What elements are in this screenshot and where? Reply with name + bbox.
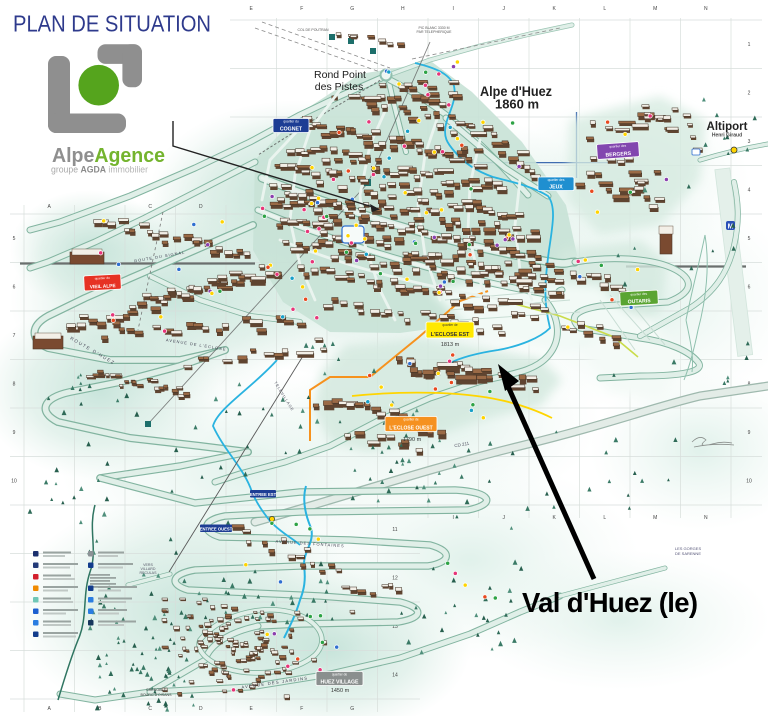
svg-text:OUTARIS: OUTARIS [628,298,652,305]
svg-text:C: C [148,204,152,210]
svg-text:1790 m: 1790 m [403,437,422,443]
svg-text:D: D [199,204,203,210]
svg-text:11: 11 [392,527,397,533]
svg-text:BOURG D'OISANS: BOURG D'OISANS [140,693,172,697]
svg-text:3: 3 [748,139,751,145]
svg-text:D: D [199,706,203,712]
svg-text:8: 8 [13,382,16,388]
svg-text:5: 5 [748,236,751,242]
svg-text:2: 2 [748,91,751,97]
svg-text:DE SARENNE: DE SARENNE [675,551,701,556]
svg-text:I: I [453,515,454,521]
svg-text:PAR TELEPHERIQUE: PAR TELEPHERIQUE [417,30,453,34]
svg-text:L: L [603,6,606,12]
svg-text:L: L [603,515,606,521]
svg-text:6: 6 [748,285,751,291]
svg-text:I: I [453,6,454,12]
svg-text:ENTREE EST: ENTREE EST [250,492,277,497]
svg-text:7: 7 [13,333,16,339]
svg-text:10: 10 [746,479,752,485]
svg-text:C: C [148,706,152,712]
svg-text:5: 5 [13,236,16,242]
svg-text:Rond Point: Rond Point [314,69,366,81]
svg-text:1860 m: 1860 m [495,97,539,112]
svg-text:GRENOBLE: GRENOBLE [146,688,167,692]
svg-text:quartier du: quartier du [283,120,298,124]
svg-text:M: M [653,515,657,521]
svg-text:Altiport: Altiport [707,121,748,133]
svg-text:L'ECLOSE EST: L'ECLOSE EST [431,332,470,338]
svg-text:M: M [653,6,657,12]
svg-text:1: 1 [748,42,751,48]
svg-text:G: G [350,706,354,712]
svg-text:1450 m: 1450 m [331,688,350,694]
svg-text:4: 4 [748,188,751,194]
svg-text:quartier de: quartier de [442,323,457,327]
svg-text:L'ECLOSE OUEST: L'ECLOSE OUEST [389,425,432,431]
svg-text:9: 9 [13,430,16,436]
svg-text:PLAN DE SITUATION: PLAN DE SITUATION [13,11,211,37]
svg-text:14: 14 [392,673,398,679]
svg-text:F: F [300,6,303,12]
svg-text:Val d'Huez (le): Val d'Huez (le) [522,587,698,618]
svg-text:N: N [704,515,708,521]
svg-text:F: F [300,706,303,712]
svg-text:ENTREE OUEST: ENTREE OUEST [200,526,233,531]
svg-text:HUEZ VILLAGE: HUEZ VILLAGE [320,679,359,685]
svg-text:10: 10 [11,479,17,485]
svg-text:COL DE POUTRAN: COL DE POUTRAN [298,28,329,32]
svg-text:RECULAS: RECULAS [140,571,158,575]
svg-text:N: N [704,6,708,12]
svg-text:G: G [350,6,354,12]
svg-text:Henri Giraud: Henri Giraud [712,133,742,139]
svg-text:1813 m: 1813 m [441,342,460,348]
svg-text:quartier de: quartier de [403,418,418,422]
svg-text:quartier de: quartier de [332,673,347,677]
svg-text:quartier des: quartier des [548,178,565,182]
svg-text:quartier du: quartier du [95,276,111,281]
svg-text:des Pistes: des Pistes [315,81,363,93]
svg-text:6: 6 [13,285,16,291]
svg-text:H: H [401,6,405,12]
svg-text:groupe AGDA immobilier: groupe AGDA immobilier [51,165,148,175]
svg-text:COGNET: COGNET [280,126,303,132]
svg-text:12: 12 [392,576,398,582]
svg-text:JEUX: JEUX [549,184,563,190]
svg-text:9: 9 [748,430,751,436]
